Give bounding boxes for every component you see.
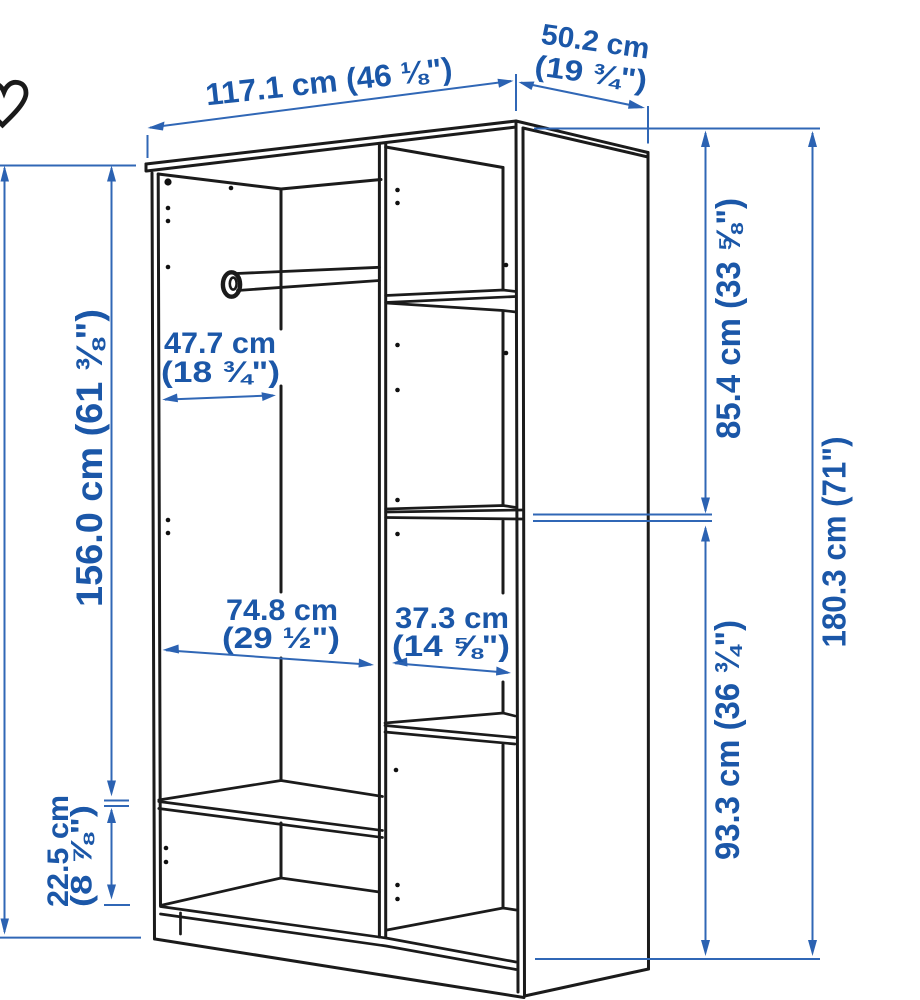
svg-text:180.3 cm (71"): 180.3 cm (71") [816,437,853,648]
svg-text:156.0 cm (61 ⅜"): 156.0 cm (61 ⅜") [69,309,110,607]
svg-text:(14 ⅝"): (14 ⅝") [392,630,510,663]
svg-text:(18 ¾"): (18 ¾") [161,356,280,389]
svg-text:(29 ½"): (29 ½") [222,622,340,655]
svg-text:(8 ⅞"): (8 ⅞") [66,805,99,907]
svg-text:93.3 cm (36 ¾"): 93.3 cm (36 ¾") [709,620,747,860]
svg-text:85.4 cm (33 ⅝"): 85.4 cm (33 ⅝") [710,198,748,439]
